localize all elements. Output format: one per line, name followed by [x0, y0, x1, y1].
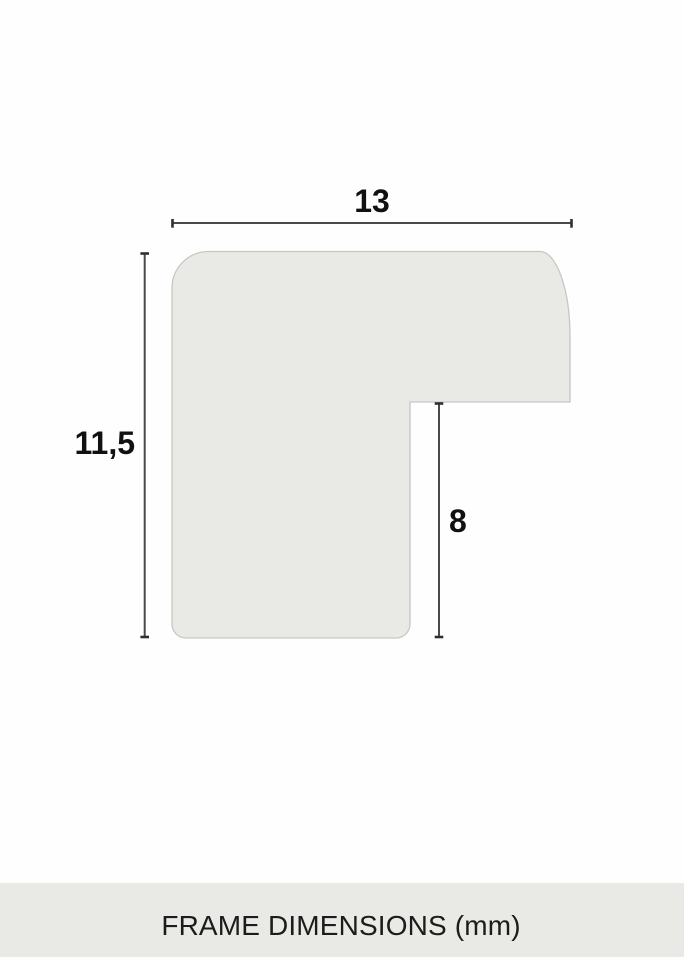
svg-text:8: 8 — [449, 503, 467, 539]
svg-text:FRAME DIMENSIONS (mm): FRAME DIMENSIONS (mm) — [161, 910, 520, 941]
svg-text:11,5: 11,5 — [74, 425, 135, 461]
svg-text:13: 13 — [354, 183, 390, 219]
